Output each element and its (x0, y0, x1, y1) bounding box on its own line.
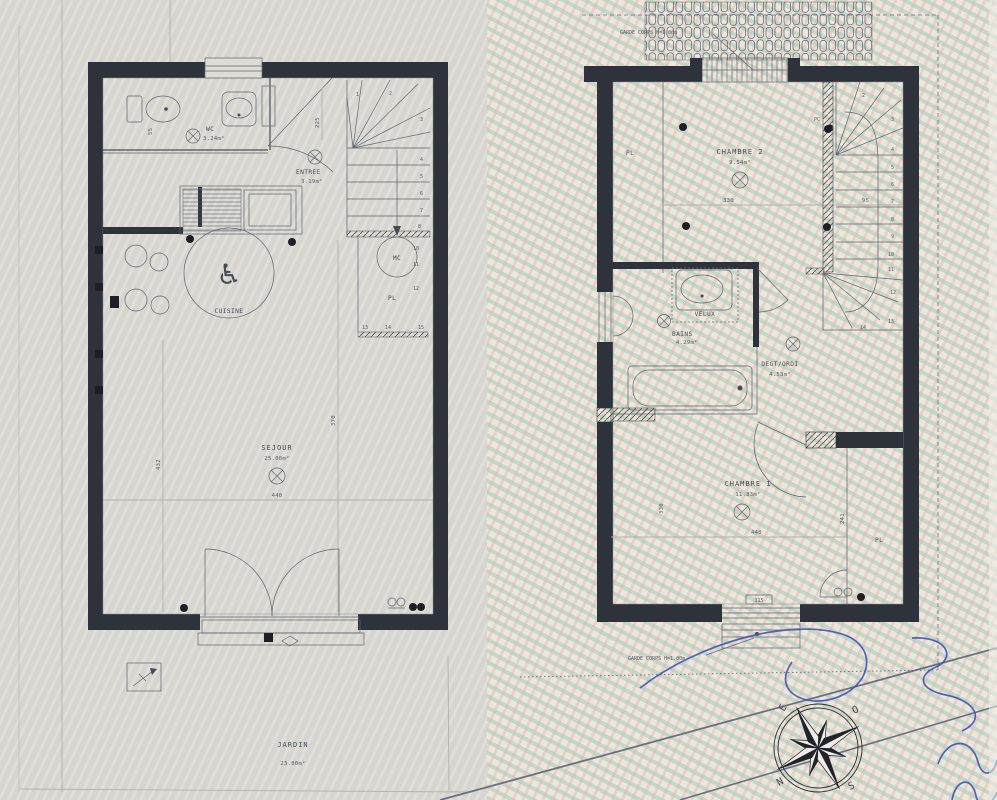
sejour-area: 25.00m² (264, 455, 289, 462)
compass-rose: N E S O (756, 686, 880, 800)
entry-door-swing (268, 78, 333, 172)
pen-scribbles (640, 629, 997, 800)
uf-wall-top-right (788, 66, 919, 82)
uf-chambre1: CHAMBRE 1 11.83m² 440 330 241 (611, 480, 847, 537)
step-number: 8 (418, 224, 421, 230)
ground-floor-plan: WC 3.24m² 55 ENTREE 3.19m² 225 (88, 58, 448, 767)
uf-wall-right (903, 66, 919, 622)
washbasin-icon (676, 270, 732, 310)
step-number: 5 (891, 165, 894, 171)
step-number: 3 (420, 117, 423, 123)
step-number: 3 (891, 117, 894, 123)
step-number: 13 (888, 319, 894, 325)
step-number: 8 (891, 217, 894, 223)
compass-s: S (847, 780, 857, 793)
scan-edge (989, 0, 997, 800)
dim-225: 225 (315, 117, 321, 128)
wc-area: 3.24m² (203, 135, 225, 142)
gf-understair: MC PL 10 11 12 13 14 15 (358, 237, 428, 337)
uf-left-window (599, 292, 633, 342)
uf-staircase: 2 3 4 5 6 7 8 9 10 11 12 13 14 (806, 82, 903, 331)
step-number: 5 (420, 174, 423, 180)
bathtub-icon (628, 366, 752, 410)
stair-rail (845, 112, 878, 312)
window-tag: 115 (754, 598, 763, 604)
pc-label: PC (814, 117, 820, 123)
step-number: 9 (891, 234, 894, 240)
dim-55: 55 (148, 128, 154, 135)
gf-radiator-icon (388, 598, 425, 611)
light-symbol (734, 504, 750, 520)
gf-wall-left (88, 62, 103, 630)
threshold-marker (282, 636, 298, 646)
light-symbol (269, 468, 285, 484)
roof-outline-dashed (582, 15, 938, 670)
gf-wc-room: WC 3.24m² 55 (103, 78, 275, 153)
jardin-label: JARDIN (277, 741, 308, 749)
uf-chambre2: PL CHAMBRE 2 9.54m² 330 95 PC (626, 82, 903, 273)
gf-cuisine: ♿ CUISINE (95, 186, 302, 394)
step-number: 11 (413, 262, 419, 268)
step-number: 2 (389, 91, 392, 97)
step-number: 2 (862, 93, 865, 99)
bath-door-swing (757, 268, 788, 312)
uf-pl-closet: PL (820, 448, 883, 604)
gf-french-doors (180, 549, 364, 646)
gf-staircase: 1 2 3 4 5 6 7 8 (347, 80, 430, 237)
step-number: 4 (420, 157, 423, 163)
gf-jardin: JARDIN 23.00m² (277, 741, 308, 767)
uf-wall-left-mid (597, 342, 613, 408)
gf-entree: ENTREE 3.19m² 225 (268, 78, 333, 185)
step-number: 10 (888, 252, 894, 258)
gf-wall-top (93, 62, 448, 78)
uf-bains: VELUX BAINS 4.29m² (611, 262, 788, 421)
step-number: 7 (420, 208, 423, 214)
jardin-area: 23.00m² (280, 760, 305, 767)
light-symbol (308, 150, 322, 164)
bains-label: BAINS (672, 331, 693, 338)
dim-440: 440 (272, 493, 283, 499)
terrain-boundary-lines (19, 0, 470, 792)
dim-95: 95 (862, 198, 869, 204)
uf-degt: DEGT/ORDI 4.53m² (761, 337, 800, 378)
pl-bottom-label: PL (875, 537, 883, 544)
step-number: 6 (891, 182, 894, 188)
dim-432: 432 (156, 459, 162, 470)
pl-top-label: PL (626, 150, 634, 157)
garde-corps-bottom-label: GARDE CORPS H=1.00m (628, 656, 685, 662)
step-number: 10 (413, 246, 419, 252)
duct (262, 86, 275, 126)
scan-page: WC 3.24m² 55 ENTREE 3.19m² 225 (0, 0, 997, 800)
degt-area: 4.53m² (769, 371, 791, 378)
gf-top-window (205, 58, 262, 78)
dim-330: 330 (723, 198, 734, 204)
degt-label: DEGT/ORDI (761, 361, 798, 368)
step-number: 12 (890, 290, 896, 296)
garde-corps-top-label: GARDE CORPS H=1.00m (620, 30, 677, 36)
compass-n: N (775, 776, 786, 789)
step-number: 13 (362, 325, 368, 331)
mc-label: MC (393, 255, 401, 262)
gf-wall-bottom-right (358, 614, 448, 630)
cuisine-label: CUISINE (215, 308, 244, 315)
dim-330v: 330 (659, 503, 665, 514)
toilet-icon (127, 96, 180, 122)
wc-label: WC (206, 126, 214, 133)
chambre2-label: CHAMBRE 2 (717, 148, 764, 156)
step-number: 1 (356, 92, 359, 98)
uf-wall-bottom-right (800, 604, 919, 622)
chambre1-area: 11.83m² (735, 491, 760, 498)
bains-area: 4.29m² (676, 339, 698, 346)
light-symbol (186, 129, 200, 143)
dim-370: 370 (331, 415, 337, 426)
gf-wall-bottom-left (88, 614, 200, 630)
velux-label: VELUX (695, 311, 716, 318)
entree-area: 3.19m² (301, 178, 323, 185)
dim-241: 241 (840, 513, 846, 524)
step-number: 12 (413, 286, 419, 292)
step-number: 7 (891, 199, 894, 205)
wheelchair-icon: ♿ (219, 254, 238, 292)
uf-chambre1-partition (754, 422, 903, 497)
step-number: 4 (891, 147, 894, 153)
chambre1-label: CHAMBRE 1 (725, 480, 772, 488)
light-symbol (658, 315, 671, 328)
entree-label: ENTREE (296, 169, 321, 176)
light-symbol (732, 172, 748, 188)
uf-wall-left-lower (597, 422, 613, 622)
step-number: 6 (420, 191, 423, 197)
sejour-label: SEJOUR (261, 444, 292, 452)
closet-door-swing (820, 570, 847, 597)
compass-o: O (851, 704, 861, 717)
floorplan-drawing: WC 3.24m² 55 ENTREE 3.19m² 225 (0, 0, 997, 800)
dim-440: 440 (751, 530, 762, 536)
step-number: 15 (418, 325, 424, 331)
uf-radiator-icon (834, 588, 865, 601)
gf-meter-box (127, 663, 161, 691)
washbasin-icon (222, 92, 256, 126)
pl-label: PL (388, 295, 396, 302)
dormer-window (690, 58, 800, 82)
gf-wall-right (433, 62, 448, 630)
pencil-lines (440, 648, 997, 800)
step-number: 14 (860, 325, 866, 331)
roof-outline-dotted (520, 670, 938, 677)
uf-wall-left-upper (597, 66, 613, 292)
step-number: 11 (888, 267, 894, 273)
light-symbol (786, 337, 800, 351)
step-number: 14 (385, 325, 391, 331)
chambre2-area: 9.54m² (729, 159, 751, 166)
upper-floor-plan: GARDE CORPS H=1.00m (520, 2, 938, 677)
uf-wall-bottom-left (597, 604, 722, 622)
